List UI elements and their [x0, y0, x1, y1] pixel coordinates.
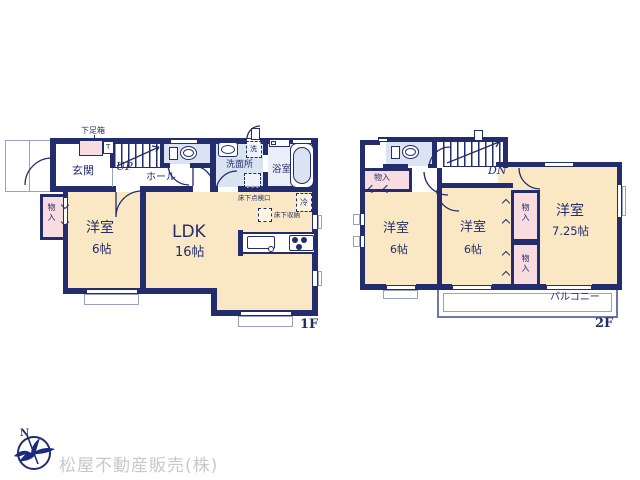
- wall-segment: [263, 143, 268, 155]
- closet-2f-upper-label: 物入: [521, 203, 529, 223]
- underfloor-storage-label: 床下収納: [274, 212, 300, 219]
- closet-2f-lower-label: 物入: [521, 254, 529, 274]
- wall-segment: [50, 138, 56, 192]
- wall-segment: [190, 163, 212, 168]
- closet-1f-label: 物入: [47, 203, 55, 223]
- compass-needle: [27, 435, 38, 464]
- window-sill: [353, 236, 360, 247]
- compass-n: N: [20, 428, 29, 439]
- western-room-1f-size: 6帖: [92, 243, 112, 255]
- entrance-label: 玄関: [72, 165, 94, 176]
- window: [378, 138, 388, 142]
- bird-icon: [14, 438, 55, 461]
- room-right-size: 7.25帖: [552, 226, 589, 238]
- room-middle-name: 洋室: [460, 221, 486, 234]
- floorplan-page: { "colors": { "wall": "#232c6d", "room_f…: [0, 0, 640, 480]
- entrance-step-line: [112, 168, 113, 187]
- window-sill: [353, 214, 360, 225]
- wall-segment: [160, 163, 170, 168]
- stove-burner: [301, 237, 307, 243]
- ldk-name: LDK: [172, 224, 206, 241]
- wall-segment: [428, 164, 437, 168]
- window: [544, 162, 574, 167]
- stairs-up-label: UP: [116, 161, 133, 172]
- washer-label: 洗: [250, 146, 257, 153]
- company-logo: N: [10, 426, 60, 476]
- ldk-size: 16帖: [175, 246, 205, 259]
- toilet-tank-icon: [169, 147, 178, 160]
- western-room-1f-floor: [68, 192, 140, 288]
- room-middle-size: 6帖: [464, 244, 482, 255]
- ldk-floor-lower: [217, 288, 312, 310]
- window-sill: [238, 316, 293, 327]
- washbasin-bowl: [221, 145, 235, 154]
- back-door-leaf: [251, 128, 260, 140]
- fridge-label: 冷: [300, 199, 308, 207]
- logo-circle: [18, 437, 50, 469]
- toilet-bowl-inner: [405, 148, 416, 156]
- room-left-size: 6帖: [390, 244, 408, 255]
- closet-2f-top-label: 物入: [374, 174, 390, 182]
- wall-segment: [617, 162, 622, 288]
- wall-segment: [492, 284, 546, 290]
- wall-segment: [383, 164, 408, 168]
- window: [360, 235, 365, 248]
- window: [452, 285, 492, 290]
- toilet-bowl-inner: [183, 149, 194, 157]
- stove-burner: [296, 244, 302, 250]
- room-right-name: 洋室: [556, 204, 584, 218]
- wall-segment: [50, 186, 116, 192]
- bath-counter-box: [271, 141, 276, 145]
- window: [170, 139, 198, 144]
- floor1-label: 1F: [300, 318, 318, 331]
- room-left-floor: [362, 192, 441, 288]
- hall-label: ホール: [146, 173, 176, 183]
- shoe-box-leader: [94, 135, 95, 141]
- company-name: 松屋不動産販売(株): [59, 451, 218, 476]
- wall-segment: [263, 172, 268, 192]
- shoe-cabinet-t-label: T: [106, 144, 110, 151]
- washroom-label: 洗面所: [226, 161, 253, 170]
- toilet-tank-icon: [391, 146, 400, 159]
- porch-step-line: [29, 140, 30, 192]
- window-sill: [84, 294, 139, 305]
- floor2-label: 2F: [595, 317, 613, 330]
- window-sill: [383, 290, 418, 299]
- window-sill: [318, 215, 322, 229]
- underfloor-hatch-label: 床下点検口: [238, 195, 271, 202]
- door-leaf: [474, 130, 483, 141]
- balcony-door: [546, 285, 592, 290]
- room-left-name: 洋室: [383, 222, 409, 235]
- wall-segment: [140, 186, 193, 192]
- shoe-cabinet: [79, 140, 103, 156]
- wall-segment: [416, 284, 452, 290]
- bathtub-inner: [293, 147, 311, 184]
- wall-segment: [140, 192, 146, 288]
- wall-segment: [592, 284, 622, 290]
- stove-burner: [292, 237, 298, 243]
- shoe-box-label: 下足箱: [81, 127, 105, 135]
- wall-segment: [437, 183, 513, 188]
- window: [360, 213, 365, 226]
- window-sill: [318, 271, 322, 286]
- kitchen-faucet: [268, 246, 274, 252]
- window-sill: [622, 186, 626, 216]
- underfloor-storage-box: [258, 208, 272, 222]
- stairs-down-label: DN: [488, 165, 506, 176]
- bath-label: 浴室: [272, 165, 291, 175]
- balcony-label: バルコニー: [550, 293, 600, 303]
- underfloor-hatch-box: [244, 173, 261, 188]
- western-room-1f-name: 洋室: [86, 221, 114, 235]
